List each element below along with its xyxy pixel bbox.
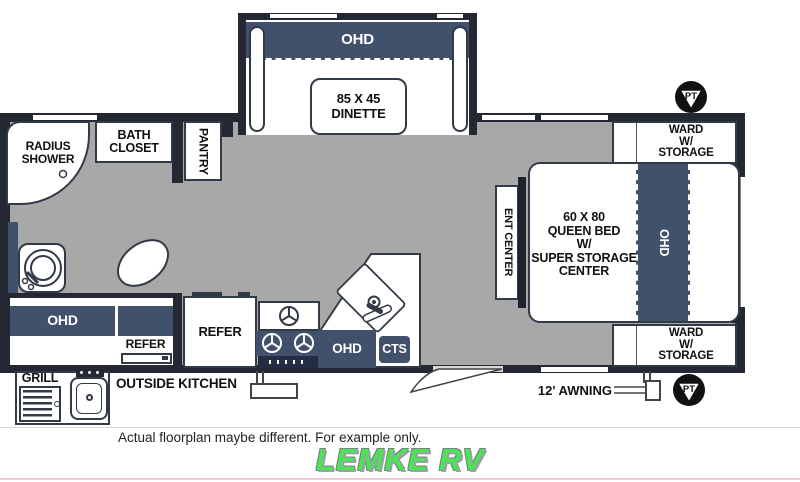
bath-faucet-knob-1	[23, 279, 28, 284]
pt-top-label: PT	[685, 91, 697, 102]
bath-faucet-spout	[27, 272, 38, 283]
glyphs-layer: PT PT	[0, 0, 800, 482]
cooktop-burner-icon-2	[295, 334, 313, 352]
pt-marker-bottom: PT	[673, 374, 705, 406]
floorplan-canvas: OHD 85 X 45 DINETTE RADIUS SHOWER BATH C…	[0, 0, 800, 482]
pt-marker-top: PT	[675, 81, 707, 113]
stove-burner-icon	[280, 307, 298, 325]
corner-sink-faucet-inner	[372, 300, 376, 304]
cooktop-burner-icon-1	[263, 334, 281, 352]
pt-bottom-label: PT	[683, 384, 695, 395]
shower-drain	[60, 171, 67, 178]
bath-faucet-knob-2	[29, 285, 34, 290]
